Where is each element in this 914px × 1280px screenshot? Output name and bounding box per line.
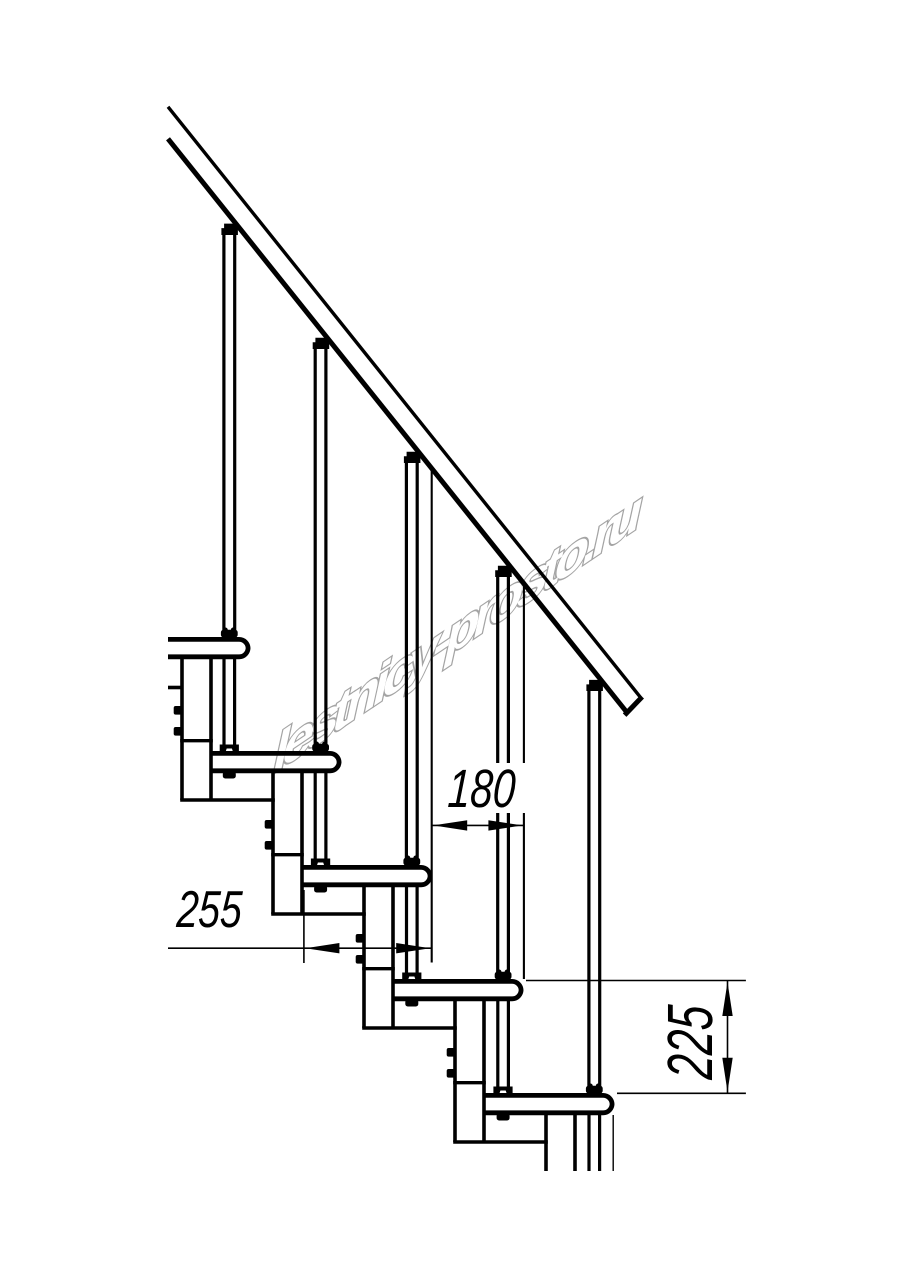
svg-text:255: 255 [175, 880, 244, 939]
svg-text:180: 180 [446, 760, 517, 820]
svg-text:225: 225 [654, 1003, 726, 1081]
